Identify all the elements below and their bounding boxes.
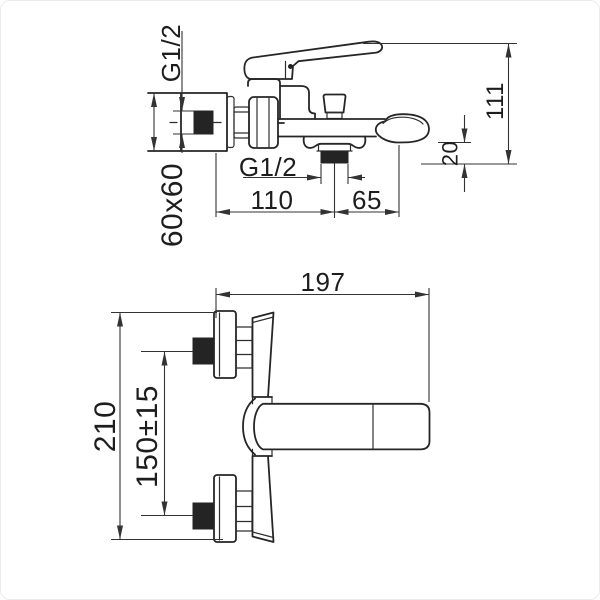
drawing-svg: G1/2 60x60 G1/2 110 65 111 20 <box>1 1 600 600</box>
dim-label-111: 111 <box>482 82 509 120</box>
dim-label-outlet-thread: G1/2 <box>239 152 297 182</box>
top-eccentric-fill <box>193 338 214 364</box>
faucet-side-outline <box>148 41 429 163</box>
dim-label-wall-thread: G1/2 <box>156 24 186 82</box>
faucet-technical-drawing: G1/2 60x60 G1/2 110 65 111 20 <box>0 0 600 600</box>
dim-label-210: 210 <box>89 401 122 453</box>
dim-label-197: 197 <box>301 267 346 297</box>
dim-label-150: 150±15 <box>131 385 164 488</box>
handle-pivot-dot <box>289 65 293 69</box>
dim-label-20: 20 <box>438 141 463 166</box>
side-view: G1/2 60x60 G1/2 110 65 111 20 <box>148 24 517 247</box>
dim-label-plate-size: 60x60 <box>156 163 189 247</box>
front-view: 197 210 150±15 <box>89 267 430 542</box>
inlet-thread-fill <box>194 111 213 134</box>
dim-label-65: 65 <box>352 185 382 215</box>
dim-label-110: 110 <box>251 185 294 215</box>
bottom-eccentric-fill <box>193 503 214 529</box>
shower-outlet-thread-fill <box>321 151 348 163</box>
faucet-front-outline <box>193 311 430 542</box>
